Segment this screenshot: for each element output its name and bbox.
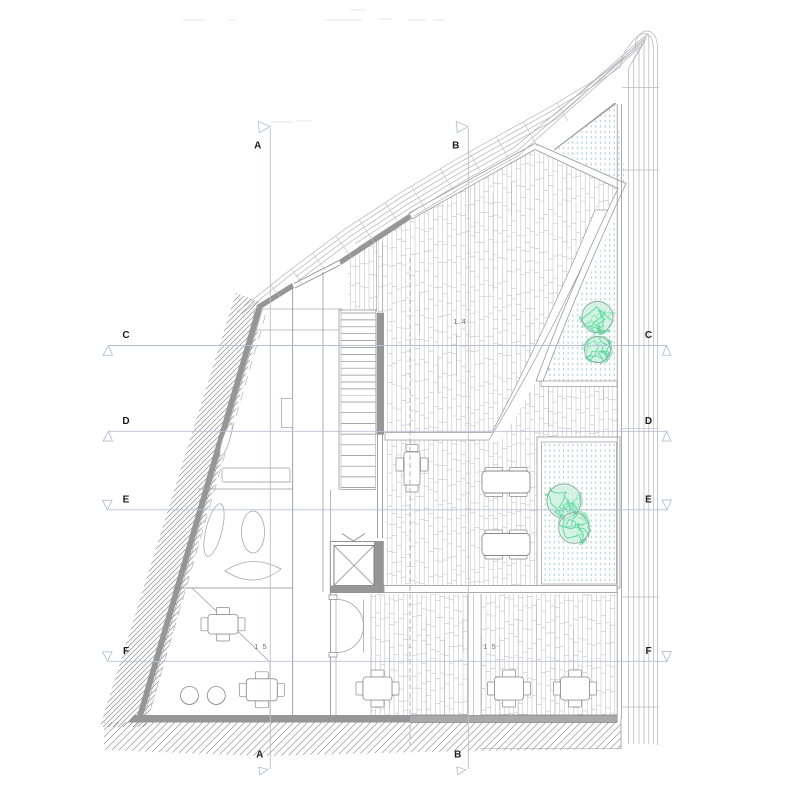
svg-text:1 4: 1 4 — [453, 317, 466, 326]
svg-text:F: F — [645, 646, 651, 657]
svg-text:D: D — [645, 416, 652, 427]
svg-text:F: F — [123, 646, 129, 657]
svg-text:A: A — [256, 750, 263, 761]
svg-text:B: B — [452, 141, 459, 152]
svg-text:C: C — [645, 330, 652, 341]
svg-text:1 5: 1 5 — [483, 642, 496, 651]
svg-text:E: E — [645, 494, 652, 505]
svg-text:C: C — [122, 330, 129, 341]
svg-text:D: D — [122, 416, 129, 427]
svg-text:B: B — [454, 750, 461, 761]
svg-text:E: E — [123, 494, 130, 505]
svg-text:1 5: 1 5 — [254, 642, 267, 651]
svg-text:A: A — [254, 141, 261, 152]
